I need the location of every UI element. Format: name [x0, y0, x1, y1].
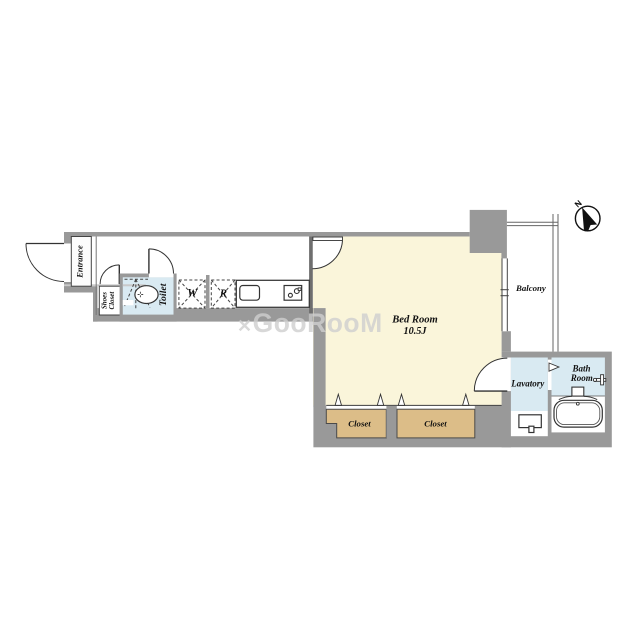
svg-text:Bed Room: Bed Room — [391, 315, 438, 326]
svg-text:Room: Room — [570, 373, 593, 383]
svg-text:10.5J: 10.5J — [404, 326, 428, 337]
svg-text:Closet: Closet — [108, 291, 116, 310]
svg-text:Balcony: Balcony — [515, 283, 546, 293]
svg-text:Bath: Bath — [571, 363, 590, 373]
svg-text:R: R — [219, 289, 227, 300]
svg-text:Lavatory: Lavatory — [510, 378, 545, 388]
svg-text:✕GooRooM: ✕GooRooM — [237, 308, 383, 338]
svg-text:Closet: Closet — [424, 418, 447, 428]
svg-text:Toilet: Toilet — [158, 283, 169, 306]
svg-text:W: W — [187, 288, 198, 300]
svg-text:Closet: Closet — [348, 418, 371, 428]
svg-text:Entrance: Entrance — [75, 245, 85, 279]
